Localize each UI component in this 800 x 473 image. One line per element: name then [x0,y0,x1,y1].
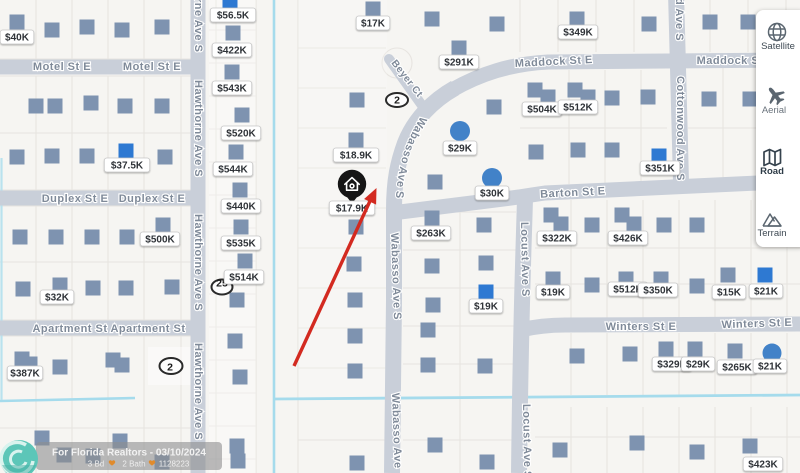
svg-text:2 Bath: 2 Bath [122,460,145,469]
svg-text:$21K: $21K [754,287,779,298]
svg-text:$440K: $440K [226,202,256,213]
svg-text:$263K: $263K [416,229,446,240]
svg-text:$387K: $387K [10,369,40,380]
svg-text:Hawthorne Ave S: Hawthorne Ave S [192,80,204,177]
svg-text:Motel St E: Motel St E [33,61,91,73]
svg-text:$349K: $349K [563,28,593,39]
svg-text:$322K: $322K [542,234,572,245]
svg-text:$520K: $520K [226,129,256,140]
svg-text:$29K: $29K [686,360,711,371]
svg-text:$265K: $265K [722,363,752,374]
svg-text:$29K: $29K [448,144,473,155]
svg-text:Duplex St E: Duplex St E [42,193,109,205]
svg-text:For Florida Realtors - 03/10/2: For Florida Realtors - 03/10/2024 [52,448,206,459]
svg-text:Locust Ave S: Locust Ave S [518,222,531,297]
svg-text:Maddock St: Maddock St [697,55,764,67]
svg-text:$535K: $535K [226,239,256,250]
svg-text:$543K: $543K [217,84,247,95]
svg-text:$19K: $19K [541,288,566,299]
svg-text:2: 2 [394,95,400,107]
svg-text:1128223: 1128223 [159,460,190,469]
svg-text:d Ave S: d Ave S [673,0,685,41]
svg-text:$291K: $291K [444,58,474,69]
svg-text:$30K: $30K [480,189,505,200]
svg-text:rne Ave S: rne Ave S [192,0,204,52]
svg-text:Hawthorne Ave S: Hawthorne Ave S [192,214,204,311]
svg-text:$351K: $351K [645,164,675,175]
svg-text:Road: Road [760,166,784,177]
svg-text:$40K: $40K [5,33,30,44]
svg-text:$422K: $422K [217,46,247,57]
svg-text:$19K: $19K [474,302,499,313]
svg-text:$500K: $500K [145,235,175,246]
svg-text:Hawthorne Ave S: Hawthorne Ave S [192,343,204,440]
svg-text:Satellite: Satellite [761,41,795,52]
svg-text:Locust Ave S: Locust Ave S [520,404,533,473]
svg-text:$544K: $544K [218,165,248,176]
svg-text:Motel St E: Motel St E [123,61,181,73]
svg-text:$512K: $512K [563,103,593,114]
svg-text:Aerial: Aerial [762,105,786,116]
svg-text:$56.5K: $56.5K [217,11,250,22]
svg-text:$21K: $21K [758,362,783,373]
svg-text:$17K: $17K [361,19,386,30]
svg-text:2: 2 [167,362,173,374]
svg-text:3 Bd: 3 Bd [88,460,104,469]
svg-text:Duplex St E: Duplex St E [119,193,186,205]
svg-text:$423K: $423K [748,460,778,471]
svg-text:Winters St E: Winters St E [721,317,792,331]
svg-text:$504K: $504K [527,105,557,116]
svg-text:$32K: $32K [45,293,70,304]
svg-text:$426K: $426K [613,234,643,245]
svg-text:Terrain: Terrain [757,228,786,239]
svg-text:$15K: $15K [717,288,742,299]
svg-text:$350K: $350K [643,286,673,297]
svg-text:Apartment St: Apartment St [32,323,107,335]
svg-text:$37.5K: $37.5K [111,161,144,172]
svg-text:Winters St E: Winters St E [606,321,677,333]
svg-text:$514K: $514K [229,273,259,284]
svg-text:Apartment St: Apartment St [110,323,185,335]
svg-text:$18.9K: $18.9K [340,151,373,162]
